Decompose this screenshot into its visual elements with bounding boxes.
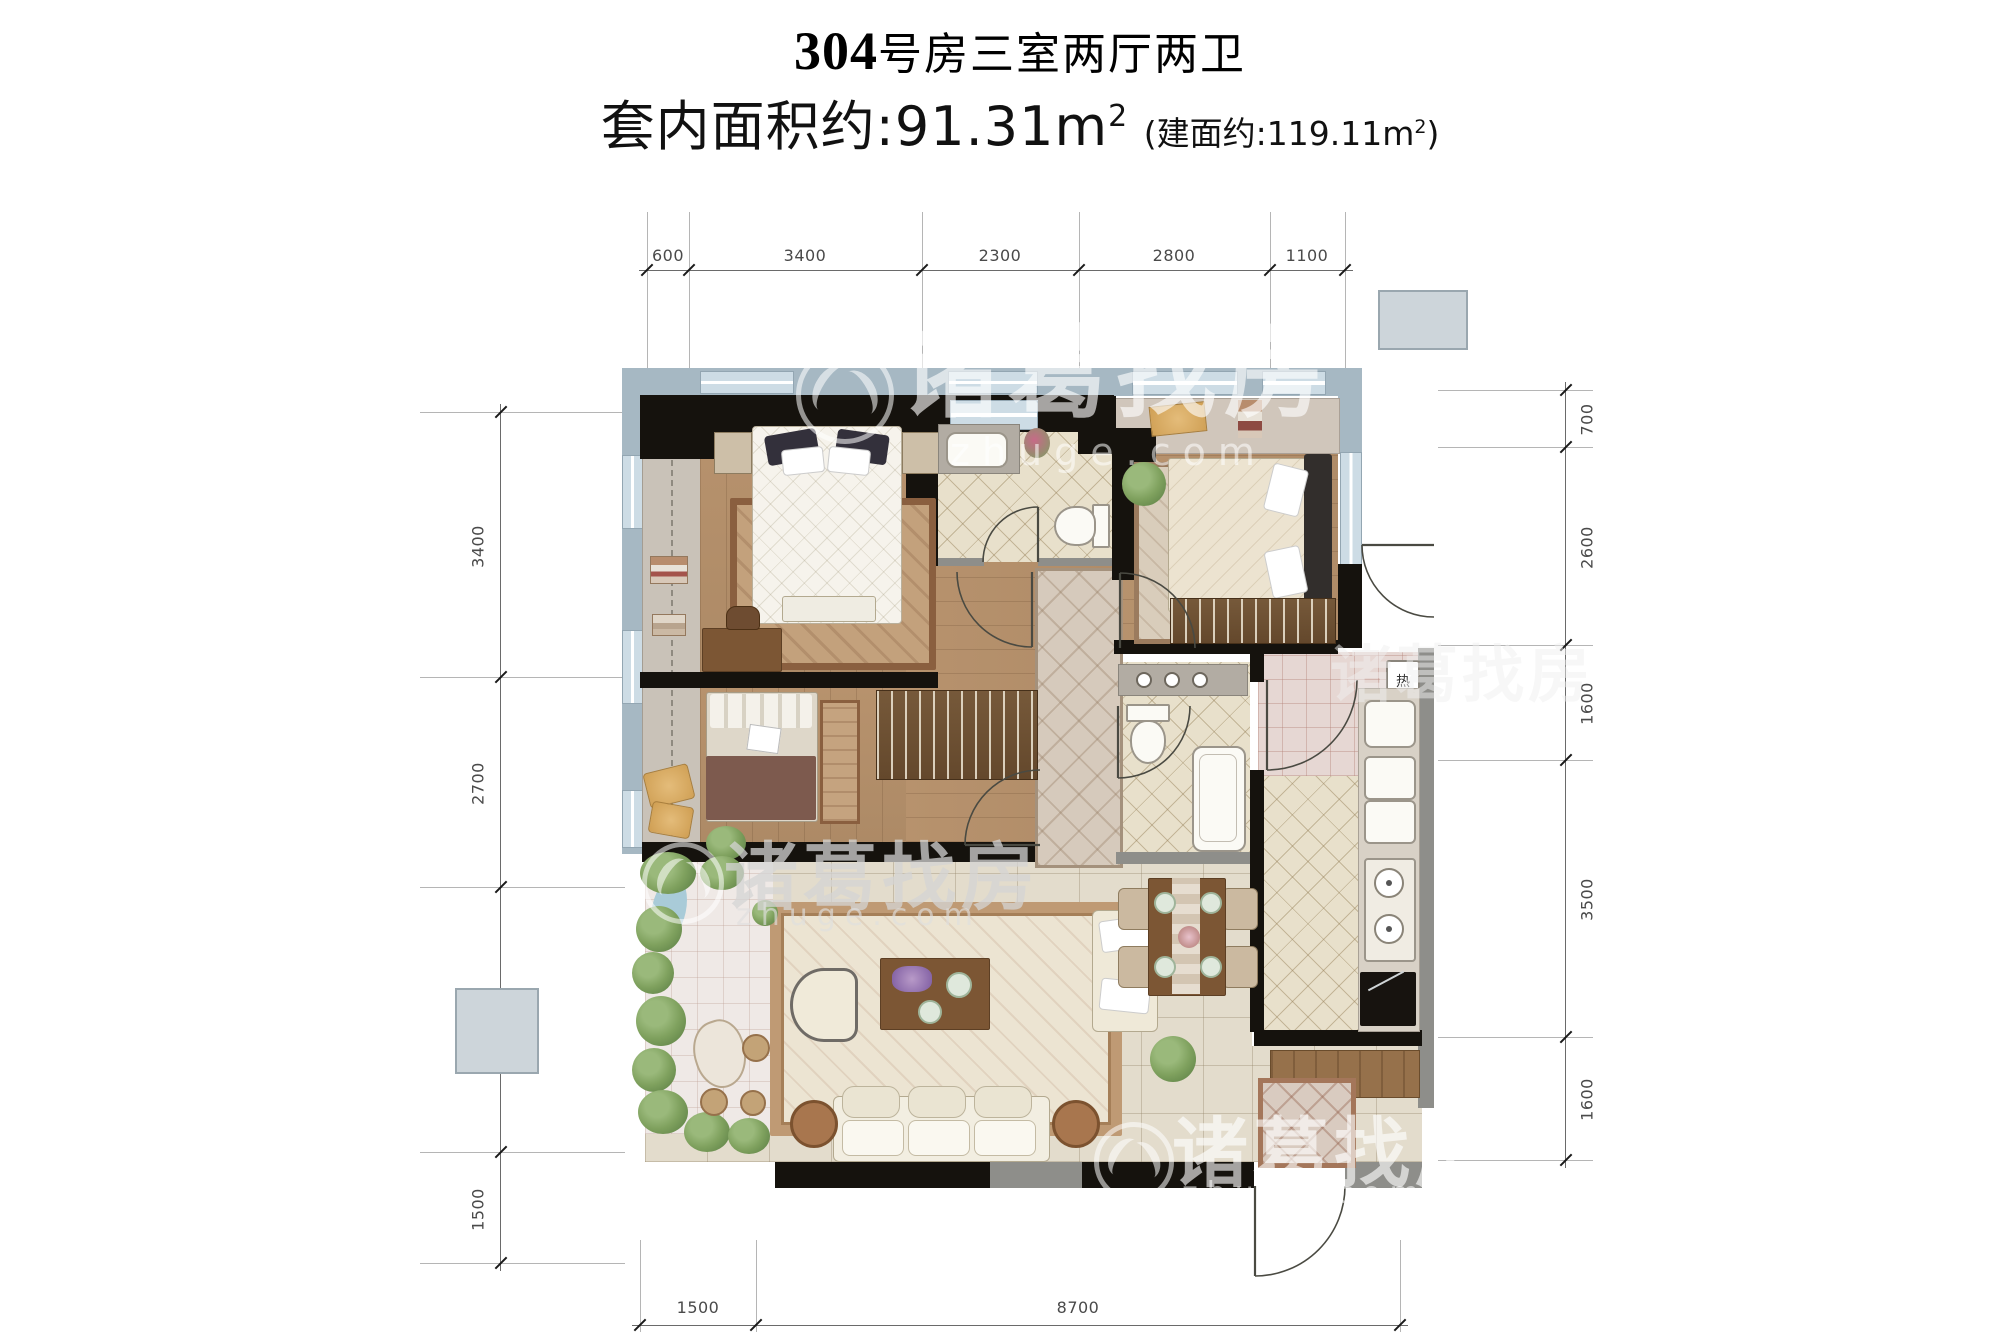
sofa-cushion	[842, 1120, 904, 1156]
garden-plant	[684, 1112, 730, 1152]
extension-line	[420, 1152, 625, 1153]
watermark-brand: 诸葛找房	[1330, 624, 1594, 714]
desk-chair	[726, 606, 760, 630]
watermark-logo	[1094, 1122, 1174, 1202]
toilet-bowl	[1130, 720, 1166, 764]
centerpiece	[1178, 926, 1200, 948]
garden-plant	[638, 1090, 688, 1134]
dim-top-4: 1100	[1257, 246, 1357, 265]
extension-line	[1438, 760, 1593, 761]
outer-wall-band-right	[1338, 394, 1362, 452]
nightstand	[902, 432, 940, 474]
nightstand	[714, 432, 752, 474]
built-unit: m	[1382, 114, 1414, 153]
extension-line	[1438, 1037, 1593, 1038]
plate	[946, 972, 972, 998]
dim-bottom-0: 1500	[648, 1298, 748, 1317]
kitchen-sink-bowl	[1364, 800, 1416, 844]
coffee-table-flowers	[892, 966, 932, 992]
closet	[876, 690, 1038, 780]
extension-line	[420, 677, 625, 678]
extension-line	[1438, 447, 1593, 448]
bed3-rug	[820, 700, 860, 824]
knob	[1136, 672, 1152, 688]
dimension-line-left	[500, 404, 501, 1271]
watermark-brand: 诸葛找房	[900, 292, 1332, 437]
kitchen-sink-bowl	[1364, 756, 1416, 800]
extension-line	[420, 887, 625, 888]
wall-bottom-gray	[990, 1162, 1082, 1188]
garden-plant	[728, 1118, 770, 1154]
plate	[918, 1000, 942, 1024]
dining-chair	[1222, 888, 1258, 930]
window	[622, 455, 643, 529]
bathtub-inner	[1199, 754, 1237, 842]
built-prefix: (建面约:	[1144, 114, 1267, 153]
page-title: 304号房三室两厅两卫	[420, 18, 1620, 82]
extension-line	[647, 212, 648, 368]
area-value: 91.31	[895, 95, 1055, 158]
sofa-pillow	[974, 1086, 1032, 1118]
watermark-domain: zhuge.com	[950, 430, 1267, 474]
wall-chunk	[640, 672, 698, 688]
extension-line	[689, 212, 690, 368]
living-plant	[1150, 1036, 1196, 1082]
plate	[1154, 956, 1176, 978]
room-number: 304	[794, 21, 878, 81]
stove-burner	[1374, 914, 1404, 944]
ac-platform	[1378, 290, 1468, 350]
utility-door-arc	[1362, 545, 1434, 617]
wall-bath1-bottom	[938, 558, 984, 566]
watermark-domain: zhuge.com	[1182, 1176, 1428, 1211]
armchair	[790, 968, 858, 1042]
watermark-logo	[642, 842, 724, 924]
garden-plant	[632, 1048, 676, 1092]
built-suffix: )	[1426, 114, 1439, 153]
wall-bottom	[775, 1162, 990, 1188]
garden-stool	[742, 1034, 770, 1062]
dimension-line-top	[639, 270, 1353, 271]
garden-stool	[740, 1090, 766, 1116]
dim-right-1: 2600	[1578, 498, 1597, 598]
built-sup: 2	[1414, 116, 1426, 138]
balcony-shelf-items	[650, 556, 688, 584]
title-suffix: 号房三室两厅两卫	[878, 29, 1246, 80]
plate	[1200, 956, 1222, 978]
area-sup: 2	[1108, 99, 1128, 134]
side-table	[1052, 1100, 1100, 1148]
pillow-white	[781, 446, 825, 476]
area-subtitle: 套内面积约:91.31m2 (建面约:119.11m2)	[420, 82, 1620, 161]
wall-corner	[640, 395, 714, 459]
dim-top-0: 600	[643, 246, 693, 265]
window	[1340, 452, 1362, 566]
dining-chair	[1222, 946, 1258, 988]
wall-bath2-bottom	[1116, 852, 1250, 864]
dim-bottom-1: 8700	[1028, 1298, 1128, 1317]
window	[622, 630, 643, 704]
sofa-pillow	[908, 1086, 966, 1118]
wall-bath1-bottom	[1038, 558, 1112, 566]
dim-right-4: 1600	[1578, 1050, 1597, 1150]
balcony-shelf-items	[652, 614, 686, 636]
knob	[1192, 672, 1208, 688]
plate	[1154, 892, 1176, 914]
knob	[1164, 672, 1180, 688]
extension-line	[1400, 1240, 1401, 1332]
sofa-cushion	[974, 1120, 1036, 1156]
hall-runner	[1035, 568, 1123, 868]
side-table	[790, 1100, 838, 1148]
extension-line	[756, 1240, 757, 1332]
dim-left-0: 3400	[469, 497, 488, 597]
plate	[1200, 892, 1222, 914]
garden-plant	[636, 996, 686, 1046]
desk	[702, 628, 782, 672]
dimension-line-bottom	[632, 1325, 1408, 1326]
dim-top-3: 2800	[1124, 246, 1224, 265]
garden-plant	[632, 952, 674, 994]
dim-right-3: 3500	[1578, 850, 1597, 950]
extension-line	[1345, 212, 1346, 368]
extension-line	[640, 1240, 641, 1332]
extension-line	[420, 1263, 625, 1264]
bed3-blanket	[706, 756, 816, 820]
watermark-domain: zhuge.com	[736, 898, 982, 933]
ac-platform	[455, 988, 539, 1074]
area-prefix: 套内面积约:	[601, 95, 895, 158]
bed3-book	[746, 724, 781, 754]
wall-master-bed3	[694, 672, 938, 688]
extension-line	[420, 412, 625, 413]
kitchen-floor	[1258, 776, 1358, 1030]
dim-right-0: 700	[1578, 370, 1597, 470]
garden-stool	[700, 1088, 728, 1116]
dimension-line-right	[1565, 382, 1566, 1168]
built-value: 119.11	[1267, 114, 1382, 153]
dim-left-1: 2700	[469, 734, 488, 834]
watermark-logo	[796, 346, 894, 444]
area-unit: m	[1054, 95, 1108, 158]
wall-kitchen-left	[1250, 648, 1264, 682]
extension-line	[1438, 390, 1593, 391]
bed3-pillows	[710, 694, 812, 728]
dim-left-3: 1500	[469, 1160, 488, 1260]
toilet-bowl	[1054, 506, 1096, 546]
wardrobe	[1170, 598, 1336, 644]
wall-kitchen-bottom	[1254, 1030, 1422, 1046]
dim-top-1: 3400	[755, 246, 855, 265]
dim-top-2: 2300	[950, 246, 1050, 265]
stove-burner	[1374, 868, 1404, 898]
window	[700, 371, 794, 394]
pillow-white	[827, 446, 871, 476]
sofa-pillow	[842, 1086, 900, 1118]
floorplan-page: 304号房三室两厅两卫 套内面积约:91.31m2 (建面约:119.11m2)…	[0, 0, 2000, 1333]
sofa-cushion	[908, 1120, 970, 1156]
window	[622, 790, 643, 848]
bed2-headboard	[1304, 454, 1332, 614]
bed-bench	[782, 596, 876, 622]
